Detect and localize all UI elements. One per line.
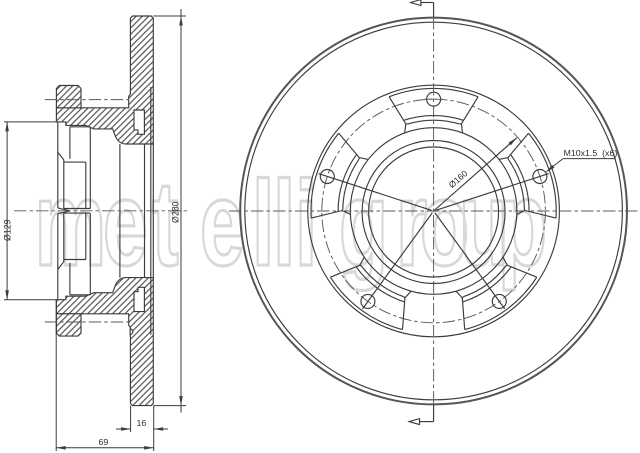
svg-text:metelligroup: metelligroup bbox=[35, 156, 547, 291]
svg-text:M10x1.5 (x6): M10x1.5 (x6) bbox=[563, 148, 617, 158]
svg-text:Ø129: Ø129 bbox=[3, 219, 13, 241]
svg-text:16: 16 bbox=[136, 418, 146, 428]
svg-text:69: 69 bbox=[98, 437, 108, 447]
svg-text:Ø280: Ø280 bbox=[171, 201, 181, 223]
